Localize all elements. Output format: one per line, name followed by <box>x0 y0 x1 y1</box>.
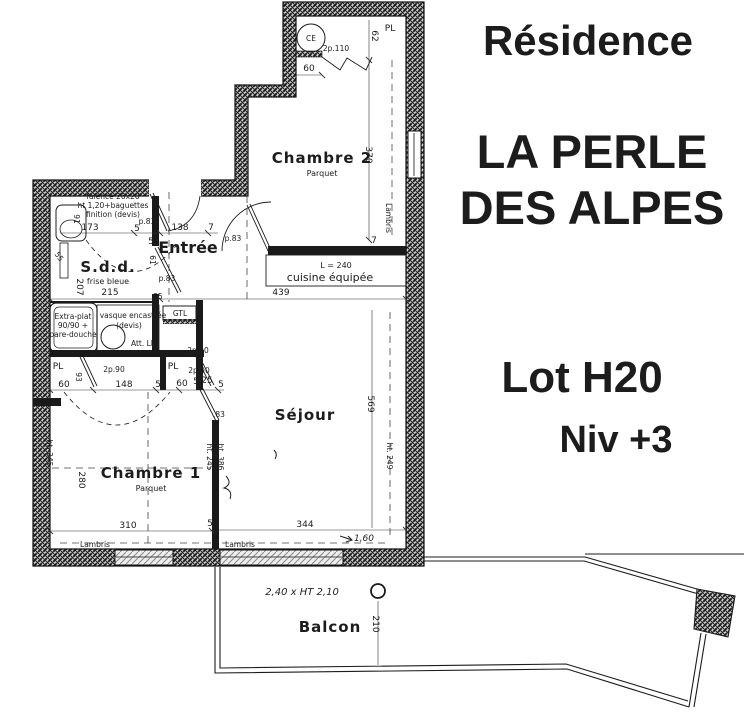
dim-569: 569 <box>365 395 375 412</box>
dim-110: 110 <box>151 327 160 342</box>
dim-148: 148 <box>115 380 132 390</box>
dim-p83-c: p.83 <box>159 274 176 283</box>
room-label-balcon: Balcon <box>299 618 362 636</box>
chambre2-door-leaf <box>247 204 271 251</box>
note-faience-2: ht 1,20+baguettes <box>78 201 149 210</box>
title-residence: Résidence <box>483 17 693 64</box>
room-label-chambre2: Chambre 2 <box>272 149 372 167</box>
note-shower-1: Extra-plat <box>55 312 92 321</box>
note-shower-2: 90/90 + <box>58 321 88 330</box>
dim-25b: 25 <box>153 292 163 301</box>
floor-plan-drawing: Chambre 2 Parquet Entrée S.d.d. frise bl… <box>0 0 744 713</box>
note-shower-3: pare-douche <box>49 330 97 339</box>
dim-60-c: 60 <box>176 379 188 389</box>
title-level: Niv +3 <box>559 419 672 461</box>
entry-door-opening <box>149 178 201 198</box>
handwritten-bay-size: 2,40 x HT 2,10 <box>265 587 339 598</box>
label-pl-left: PL <box>53 362 63 372</box>
dim-60-top: 60 <box>303 64 315 74</box>
dim-5b: 5 <box>155 380 161 390</box>
dim-25a: 25 <box>201 376 212 386</box>
dim-210: 210 <box>370 615 380 632</box>
room-label-sdd: S.d.d. <box>80 258 135 276</box>
balcony-pier <box>694 589 735 637</box>
note-vasque-1: vasque encastrée <box>100 311 167 320</box>
dim-7b: 7 <box>371 236 377 246</box>
floor-label-chambre2: Parquet <box>307 169 338 178</box>
label-pl-corridor: PL <box>168 362 178 372</box>
dim-ht245-left: ht. 245 <box>45 440 54 467</box>
dim-173: 173 <box>81 223 98 233</box>
dim-60-b: 60 <box>58 380 70 390</box>
dim-91: 91 <box>72 214 81 224</box>
balcony-column <box>371 584 385 598</box>
handwritten-160: 1,60 <box>354 534 374 544</box>
kitchen-length: L = 240 <box>320 261 352 270</box>
dim-83: .83 <box>213 410 225 419</box>
note-faience-3: finition (devis) <box>86 210 140 219</box>
label-lambris-1: Lambris <box>80 540 110 549</box>
label-2p90-left: 2p.90 <box>103 365 125 374</box>
dim-93: 93 <box>74 372 83 382</box>
floor-plan-page: { "title": { "residence": "Résidence", "… <box>0 0 744 713</box>
dim-344: 344 <box>296 520 313 530</box>
dimension-lines <box>47 20 409 665</box>
balcony-outline <box>215 554 744 707</box>
dim-5d: 5 <box>218 380 224 390</box>
interior-walls <box>33 196 406 549</box>
dim-p83-b: p.83 <box>225 234 242 243</box>
dim-7a: 7 <box>208 223 214 233</box>
dim-370: 370 <box>363 146 373 163</box>
dim-5f: 5 <box>148 237 154 247</box>
label-gtl: GTL <box>173 309 188 318</box>
label-pl-top: PL <box>385 24 395 34</box>
label-2p110: 2p.110 <box>323 44 349 53</box>
chambre1-window <box>115 550 173 565</box>
note-vasque-2: (devis) <box>116 321 142 330</box>
room-label-chambre1: Chambre 1 <box>101 464 201 482</box>
dim-p83-a: p.83 <box>139 217 156 226</box>
dim-280: 280 <box>76 471 86 488</box>
title-block: Résidence LA PERLE DES ALPES Lot H20 Niv… <box>460 17 725 461</box>
floor-label-chambre1: Parquet <box>136 484 167 493</box>
dim-ht386: ht. 386 <box>216 444 225 471</box>
chambre2-door-swing <box>222 202 271 251</box>
label-2p90-mid: 2p.90 <box>187 346 209 355</box>
handwritten-marks <box>224 450 352 542</box>
dim-5e: 5 <box>207 519 213 529</box>
dim-439: 439 <box>272 288 289 298</box>
label-lambris-2: Lambris <box>225 540 255 549</box>
dim-207: 207 <box>74 278 84 295</box>
title-lot: Lot H20 <box>501 353 662 402</box>
dim-62: 62 <box>369 30 379 41</box>
dim-ht249: ht. 249 <box>385 443 394 470</box>
note-faience-1: faïence 20x20 <box>86 192 140 201</box>
note-frise-bleue: frise bleue <box>87 277 129 286</box>
room-label-sejour: Séjour <box>275 406 336 424</box>
pl-folding-door <box>322 57 372 70</box>
dim-ht245-right: ht. 245 <box>205 444 214 471</box>
label-ce: CE <box>306 34 316 43</box>
label-lambris-right: Lambris <box>384 203 393 233</box>
room-label-entree: Entrée <box>158 238 218 257</box>
dim-5c: 5 <box>193 377 199 387</box>
title-name-line2: DES ALPES <box>460 181 725 234</box>
label-2p90-right: 2p.90 <box>188 366 210 375</box>
closet-swing-dashed <box>64 392 170 425</box>
dim-138: 138 <box>171 223 188 233</box>
sejour-bay-window <box>220 550 343 565</box>
dim-215: 215 <box>101 288 118 298</box>
dim-61: 61 <box>148 255 157 265</box>
chambre2-window <box>408 131 421 178</box>
room-label-cuisine: cuisine équipée <box>287 271 374 284</box>
title-name-line1: LA PERLE <box>477 125 708 178</box>
dim-310: 310 <box>119 521 136 531</box>
